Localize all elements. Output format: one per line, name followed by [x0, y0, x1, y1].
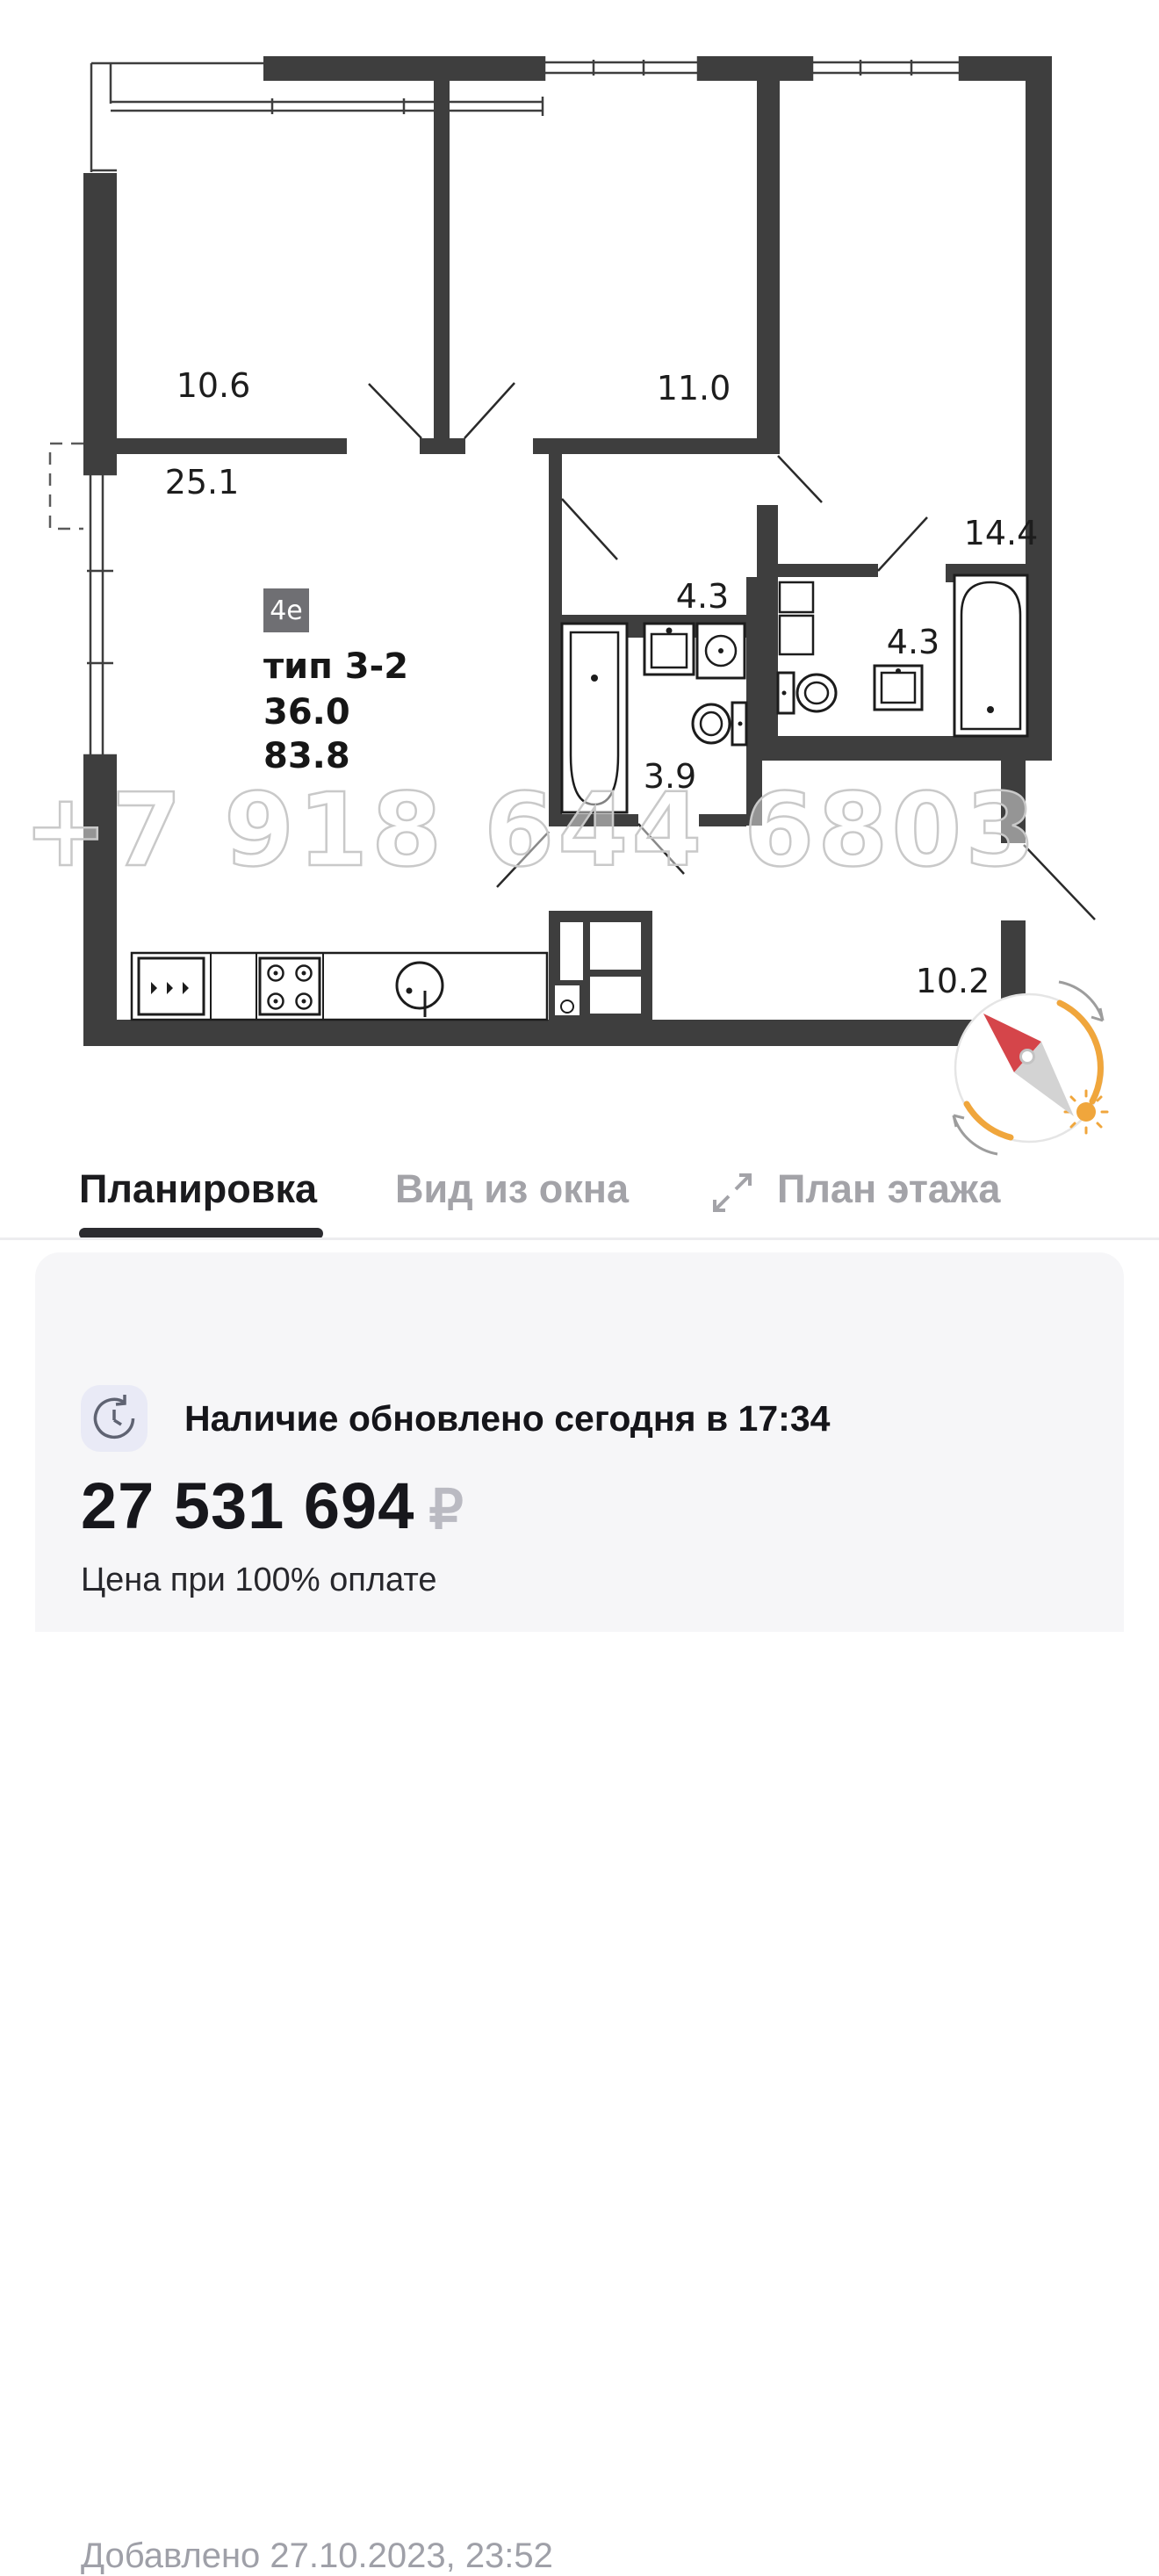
price-note: Цена при 100% оплате — [81, 1562, 436, 1599]
room-label-4-3-bath: 4.3 — [887, 623, 939, 661]
room-label-3-9: 3.9 — [644, 757, 696, 796]
added-date: Добавлено 27.10.2023, 23:52 — [81, 2536, 553, 2576]
watermark-phone: +7 918 644 6803 — [24, 772, 1040, 890]
availability-text: Наличие обновлено сегодня в 17:34 — [184, 1398, 830, 1440]
fridge-icon — [139, 958, 204, 1014]
room-label-10-2: 10.2 — [916, 962, 990, 1000]
walls — [83, 56, 1052, 1046]
bathtub-right — [954, 575, 1027, 736]
floor-plan: +7 918 644 6803 10.6 25.1 11.0 14.4 4.3 … — [0, 0, 1159, 1159]
tab-planirovka[interactable]: Планировка — [79, 1166, 317, 1212]
compass-widget[interactable] — [954, 982, 1107, 1154]
sink-left-bathroom — [644, 624, 694, 675]
listing-info-card: Добавлено 27.10.2023, 23:52 Наличие обно… — [35, 1252, 1124, 1632]
stove-icon — [260, 958, 320, 1014]
tab-vid-iz-okna[interactable]: Вид из окна — [395, 1166, 629, 1212]
windows — [83, 56, 960, 755]
area-total: 83.8 — [263, 736, 350, 776]
expand-icon[interactable] — [708, 1168, 757, 1217]
room-label-4-3-hall: 4.3 — [676, 577, 729, 616]
shaft-boxes — [780, 582, 813, 654]
toilet-right-bathroom — [778, 673, 836, 713]
type-name: тип 3-2 — [263, 646, 408, 687]
tab-plan-etazha[interactable]: План этажа — [777, 1166, 1000, 1212]
apartment-type-block: 4е тип 3-2 36.0 83.8 — [263, 588, 408, 776]
balcony-top-left — [91, 63, 263, 172]
sink-right-bathroom — [875, 666, 922, 710]
price-value: 27 531 694 — [81, 1469, 414, 1542]
room-label-11-0: 11.0 — [657, 369, 731, 408]
wardrobe — [549, 911, 652, 1020]
balcony-left-dashed — [50, 444, 83, 529]
type-badge-label: 4е — [270, 595, 303, 626]
currency-symbol: ₽ — [428, 1480, 463, 1541]
room-label-25-1: 25.1 — [165, 463, 240, 501]
tabs-divider — [0, 1237, 1159, 1240]
toilet-left-bathroom — [693, 703, 746, 745]
room-label-14-4: 14.4 — [964, 514, 1039, 552]
room-label-10-6: 10.6 — [176, 366, 251, 405]
washing-machine — [697, 624, 745, 678]
area-living: 36.0 — [263, 692, 350, 732]
availability-clock-icon — [81, 1385, 148, 1452]
